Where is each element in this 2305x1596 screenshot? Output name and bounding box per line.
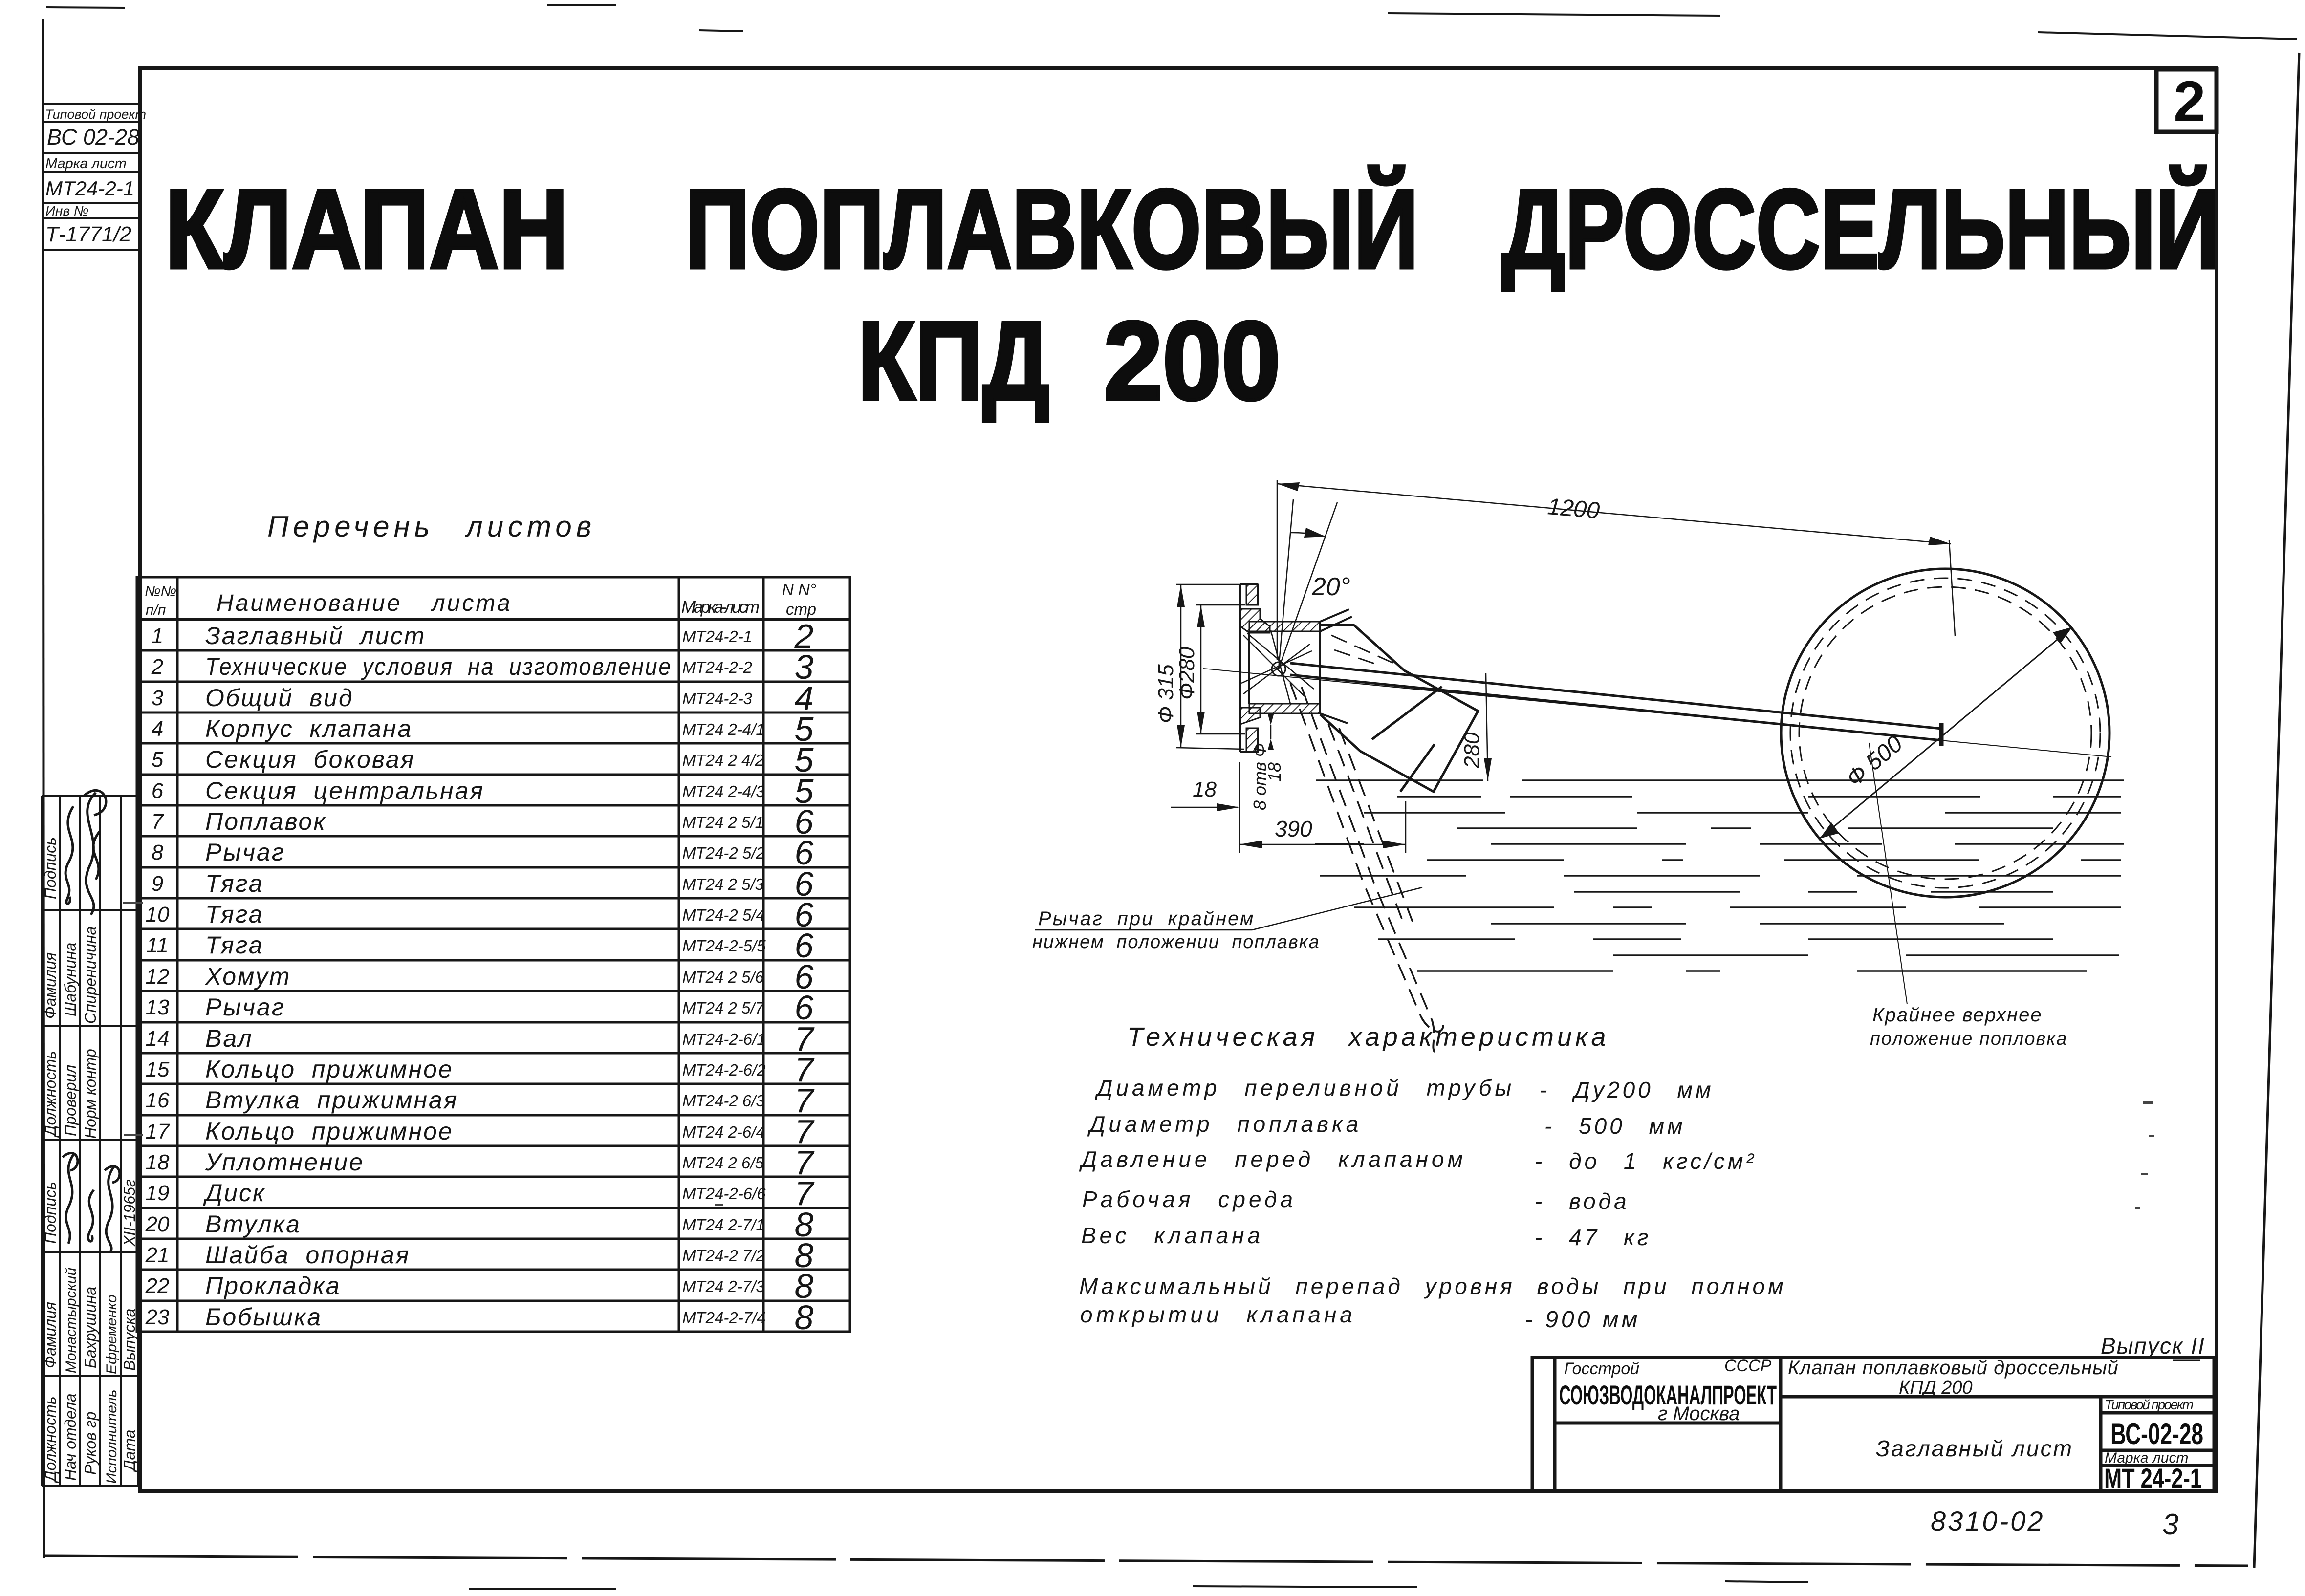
- svg-text:нижнем положении поплавка: нижнем положении поплавка: [1032, 932, 1320, 952]
- svg-text:8: 8: [152, 841, 164, 864]
- svg-text:Шабунина: Шабунина: [62, 943, 79, 1016]
- svg-text:13: 13: [146, 995, 170, 1019]
- svg-text:23: 23: [145, 1305, 170, 1329]
- svg-text:КПД 200: КПД 200: [1899, 1378, 1973, 1398]
- svg-text:МТ24-2-6/1: МТ24-2-6/1: [682, 1030, 766, 1048]
- svg-text:КПД: КПД: [858, 299, 1049, 423]
- svg-text:8: 8: [795, 1298, 814, 1337]
- svg-text:г Москва: г Москва: [1658, 1403, 1740, 1424]
- svg-text:Тяга: Тяга: [205, 931, 264, 959]
- svg-text:Секция центральная: Секция центральная: [205, 777, 484, 804]
- svg-text:МТ24-2-3: МТ24-2-3: [682, 690, 753, 708]
- svg-text:МТ24-2 5/4: МТ24-2 5/4: [682, 906, 765, 924]
- svg-text:Вал: Вал: [205, 1025, 253, 1052]
- svg-text:Вес клапана: Вес клапана: [1081, 1223, 1263, 1248]
- svg-text:Тяга: Тяга: [205, 901, 264, 928]
- svg-text:Бобышка: Бобышка: [205, 1303, 322, 1331]
- svg-text:п/п: п/п: [146, 602, 166, 618]
- svg-text:МТ24 2-4/1: МТ24 2-4/1: [682, 720, 765, 738]
- svg-text:МТ24-2 5/2: МТ24-2 5/2: [682, 844, 765, 862]
- svg-text:МТ24-2-6/6: МТ24-2-6/6: [682, 1185, 766, 1203]
- svg-text:МТ24 2 6/5: МТ24 2 6/5: [682, 1154, 764, 1172]
- svg-text:ВС-02-28: ВС-02-28: [2110, 1418, 2203, 1450]
- svg-text:N N°: N N°: [782, 581, 816, 599]
- svg-text:Инв №: Инв №: [45, 203, 88, 218]
- svg-text:Марка-лист: Марка-лист: [681, 598, 760, 617]
- svg-text:18: 18: [146, 1150, 170, 1174]
- svg-text:Кольцо прижимное: Кольцо прижимное: [205, 1118, 454, 1145]
- svg-text:Поплавок: Поплавок: [205, 808, 326, 835]
- svg-text:ПОПЛАВКОВЫЙ: ПОПЛАВКОВЫЙ: [685, 166, 1418, 292]
- svg-text:- до 1 кгс/см²: - до 1 кгс/см²: [1535, 1148, 1757, 1174]
- svg-text:Монастырский: Монастырский: [63, 1268, 79, 1373]
- svg-text:МТ24-2-1: МТ24-2-1: [682, 627, 752, 646]
- svg-text:12: 12: [146, 965, 170, 989]
- svg-text:Давление перед клапаном: Давление перед клапаном: [1079, 1146, 1466, 1172]
- svg-text:Типовой проект: Типовой проект: [45, 107, 146, 122]
- svg-text:18: 18: [1193, 777, 1217, 801]
- svg-text:Перечень листов: Перечень листов: [267, 510, 596, 543]
- svg-text:Рычаг: Рычаг: [205, 993, 285, 1021]
- svg-text:МТ24-2-1: МТ24-2-1: [45, 177, 134, 200]
- svg-text:Заглавный лист: Заглавный лист: [1876, 1436, 2073, 1461]
- svg-text:Нач отдела: Нач отдела: [62, 1393, 79, 1481]
- svg-text:Втулка: Втулка: [205, 1210, 301, 1238]
- svg-text:Ф280: Ф280: [1175, 647, 1199, 700]
- svg-text:Рабочая среда: Рабочая среда: [1082, 1186, 1296, 1212]
- svg-text:Фамилия: Фамилия: [42, 952, 59, 1019]
- svg-text:Корпус клапана: Корпус клапана: [205, 715, 413, 742]
- svg-text:Должность: Должность: [42, 1396, 59, 1483]
- svg-text:Спиреничина: Спиреничина: [82, 927, 99, 1024]
- svg-text:открытии клапана: открытии клапана: [1080, 1302, 1356, 1327]
- svg-text:390: 390: [1275, 816, 1312, 841]
- svg-text:ВС 02-28: ВС 02-28: [47, 125, 139, 150]
- svg-text:Заглавный лист: Заглавный лист: [205, 622, 426, 649]
- svg-text:Кольцо прижимное: Кольцо прижимное: [205, 1056, 454, 1083]
- svg-text:16: 16: [146, 1088, 170, 1112]
- svg-text:Рычаг при крайнем: Рычаг при крайнем: [1038, 908, 1255, 929]
- svg-text:17: 17: [146, 1120, 170, 1143]
- svg-text:7: 7: [152, 810, 164, 834]
- svg-text:1: 1: [152, 624, 163, 648]
- svg-text:11: 11: [146, 933, 169, 957]
- svg-text:Бахрушина: Бахрушина: [82, 1287, 99, 1368]
- svg-text:Госстрой: Госстрой: [1564, 1359, 1639, 1378]
- svg-text:Секция боковая: Секция боковая: [205, 746, 415, 773]
- svg-text:Дата: Дата: [121, 1430, 138, 1472]
- svg-text:Наименование листа: Наименование листа: [217, 590, 512, 616]
- svg-text:5: 5: [152, 748, 164, 772]
- svg-text:Диаметр переливной трубы: Диаметр переливной трубы: [1094, 1075, 1515, 1100]
- svg-text:Фамилия: Фамилия: [42, 1302, 59, 1368]
- svg-text:9: 9: [152, 872, 163, 896]
- svg-text:Должность: Должность: [42, 1051, 59, 1138]
- svg-text:СССР: СССР: [1724, 1357, 1772, 1375]
- svg-text:2: 2: [151, 655, 163, 679]
- svg-text:10: 10: [146, 903, 170, 927]
- svg-text:Втулка прижимная: Втулка прижимная: [205, 1086, 458, 1114]
- svg-text:МТ24 2-7/1: МТ24 2-7/1: [682, 1216, 765, 1234]
- svg-text:№№: №№: [145, 583, 176, 600]
- svg-text:Крайнее верхнее: Крайнее верхнее: [1872, 1004, 2043, 1026]
- svg-text:- Ду200 мм: - Ду200 мм: [1540, 1077, 1714, 1102]
- svg-text:МТ24 2 5/7: МТ24 2 5/7: [682, 999, 765, 1017]
- svg-text:Исполнитель: Исполнитель: [104, 1390, 120, 1484]
- svg-text:Т-1771/2: Т-1771/2: [45, 222, 131, 246]
- svg-text:6: 6: [152, 779, 164, 803]
- svg-text:8310-02: 8310-02: [1931, 1506, 2045, 1536]
- svg-text:280: 280: [1460, 732, 1484, 769]
- svg-text:Шайба опорная: Шайба опорная: [205, 1241, 410, 1269]
- svg-text:- 900 мм: - 900 мм: [1525, 1307, 1641, 1333]
- svg-text:Клапан поплавковый дроссельн: Клапан поплавковый дроссельный: [1788, 1357, 2119, 1379]
- svg-text:ДРОССЕЛЬНЫЙ: ДРОССЕЛЬНЫЙ: [1502, 166, 2219, 292]
- svg-text:Подпись: Подпись: [42, 1182, 59, 1244]
- svg-text:МТ24 2-6/4: МТ24 2-6/4: [682, 1123, 765, 1141]
- svg-text:МТ24-2 7/2: МТ24-2 7/2: [682, 1247, 765, 1265]
- svg-text:Подпись: Подпись: [42, 837, 59, 899]
- svg-text:14: 14: [146, 1027, 170, 1051]
- svg-text:МТ24-2-7/4: МТ24-2-7/4: [682, 1309, 766, 1327]
- svg-text:МТ24-2 6/3: МТ24-2 6/3: [682, 1092, 765, 1110]
- svg-text:МТ24-2-2: МТ24-2-2: [682, 658, 752, 676]
- svg-text:стр: стр: [786, 600, 816, 618]
- svg-text:4: 4: [152, 717, 163, 741]
- svg-text:3: 3: [2162, 1508, 2178, 1541]
- svg-text:Хомут: Хомут: [205, 963, 291, 990]
- svg-text:положение попловка: положение попловка: [1870, 1029, 2067, 1049]
- svg-text:21: 21: [145, 1243, 170, 1267]
- svg-text:МТ24 2 5/6: МТ24 2 5/6: [682, 968, 764, 986]
- svg-text:1200: 1200: [1546, 494, 1601, 524]
- svg-text:Технические условия на изг: Технические условия на изготовление: [205, 653, 672, 680]
- svg-text:Руков гр: Руков гр: [82, 1412, 99, 1475]
- svg-text:20: 20: [145, 1212, 170, 1236]
- svg-text:Выпуск II: Выпуск II: [2101, 1333, 2205, 1359]
- svg-text:- 500 мм: - 500 мм: [1544, 1113, 1686, 1139]
- svg-text:22: 22: [145, 1274, 170, 1298]
- svg-text:Рычаг: Рычаг: [205, 839, 285, 866]
- svg-text:Типовой проект: Типовой проект: [2105, 1397, 2194, 1412]
- svg-text:МТ24-2-5/5: МТ24-2-5/5: [682, 937, 766, 955]
- svg-text:МТ24 2-4/3: МТ24 2-4/3: [682, 782, 765, 800]
- svg-text:Техническая характеристика: Техническая характеристика: [1127, 1022, 1609, 1052]
- svg-text:Диск: Диск: [203, 1179, 266, 1207]
- svg-text:МТ24 2-7/3: МТ24 2-7/3: [682, 1277, 765, 1295]
- svg-text:Прокладка: Прокладка: [205, 1272, 341, 1299]
- svg-text:МТ24-2-6/2: МТ24-2-6/2: [682, 1061, 766, 1079]
- svg-text:Тяга: Тяга: [205, 870, 264, 897]
- svg-text:МТ24 2 5/1: МТ24 2 5/1: [682, 813, 764, 831]
- svg-text:КЛАПАН: КЛАПАН: [165, 166, 568, 292]
- svg-text:200: 200: [1104, 299, 1281, 423]
- svg-text:2: 2: [2174, 69, 2206, 134]
- svg-text:- вода: - вода: [1535, 1188, 1630, 1214]
- svg-text:Максимальный перепад уровня: Максимальный перепад уровня воды при пол…: [1079, 1273, 1786, 1299]
- svg-text:Проверил: Проверил: [62, 1065, 79, 1136]
- svg-text:Ефременко: Ефременко: [104, 1294, 120, 1374]
- svg-text:Общий вид: Общий вид: [205, 684, 354, 712]
- svg-text:Диаметр поплавка: Диаметр поплавка: [1087, 1111, 1362, 1137]
- svg-text:МТ24 2 4/2: МТ24 2 4/2: [682, 751, 764, 769]
- svg-text:15: 15: [146, 1057, 170, 1081]
- svg-text:Норм контр: Норм контр: [82, 1049, 99, 1139]
- svg-text:МТ 24-2-1: МТ 24-2-1: [2104, 1463, 2202, 1493]
- svg-text:Уплотнение: Уплотнение: [205, 1148, 364, 1176]
- svg-text:18: 18: [1264, 762, 1284, 782]
- svg-text:20°: 20°: [1311, 573, 1350, 601]
- svg-text:МТ24 2 5/3: МТ24 2 5/3: [682, 875, 764, 893]
- svg-text:- 47 кг: - 47 кг: [1535, 1225, 1651, 1250]
- svg-text:3: 3: [152, 686, 164, 710]
- svg-text:Марка лист: Марка лист: [45, 156, 127, 172]
- svg-text:Ф 315: Ф 315: [1154, 664, 1178, 723]
- svg-text:19: 19: [146, 1181, 170, 1205]
